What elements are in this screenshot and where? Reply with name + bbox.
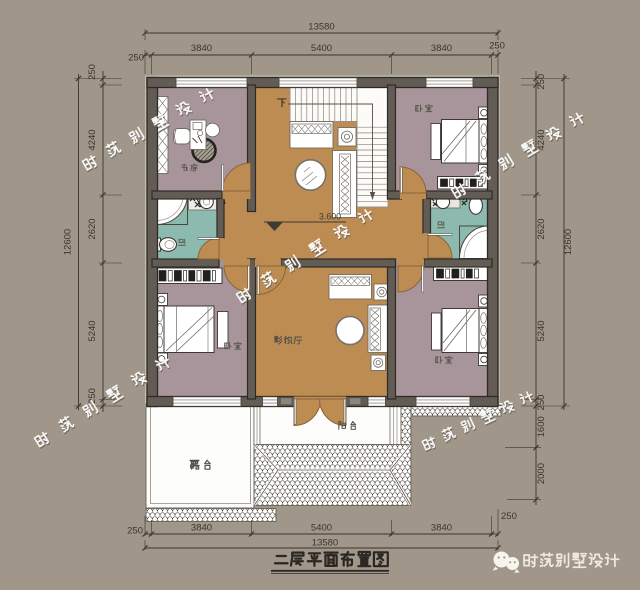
svg-text:250: 250 — [87, 64, 98, 80]
svg-text:13580: 13580 — [308, 22, 334, 33]
svg-text:5240: 5240 — [536, 320, 547, 341]
svg-text:12600: 12600 — [563, 229, 574, 255]
svg-text:250: 250 — [128, 53, 144, 64]
svg-text:5400: 5400 — [311, 523, 332, 534]
svg-text:2620: 2620 — [87, 218, 98, 239]
svg-text:250: 250 — [536, 74, 547, 90]
svg-text:3840: 3840 — [431, 523, 452, 534]
svg-text:3840: 3840 — [191, 523, 212, 534]
svg-text:3840: 3840 — [431, 43, 452, 54]
svg-text:12600: 12600 — [63, 229, 74, 255]
svg-text:250: 250 — [536, 395, 547, 411]
svg-text:5240: 5240 — [87, 320, 98, 341]
svg-text:250: 250 — [501, 511, 517, 522]
svg-text:250: 250 — [489, 41, 505, 52]
svg-text:2000: 2000 — [536, 463, 547, 484]
svg-text:4240: 4240 — [87, 129, 98, 150]
svg-text:13580: 13580 — [312, 538, 338, 549]
svg-text:5400: 5400 — [311, 43, 332, 54]
svg-text:4240: 4240 — [536, 129, 547, 150]
svg-text:1600: 1600 — [536, 416, 547, 437]
svg-text:3840: 3840 — [191, 43, 212, 54]
svg-text:3.600: 3.600 — [319, 212, 341, 222]
svg-text:2620: 2620 — [536, 218, 547, 239]
svg-text:250: 250 — [127, 526, 143, 537]
